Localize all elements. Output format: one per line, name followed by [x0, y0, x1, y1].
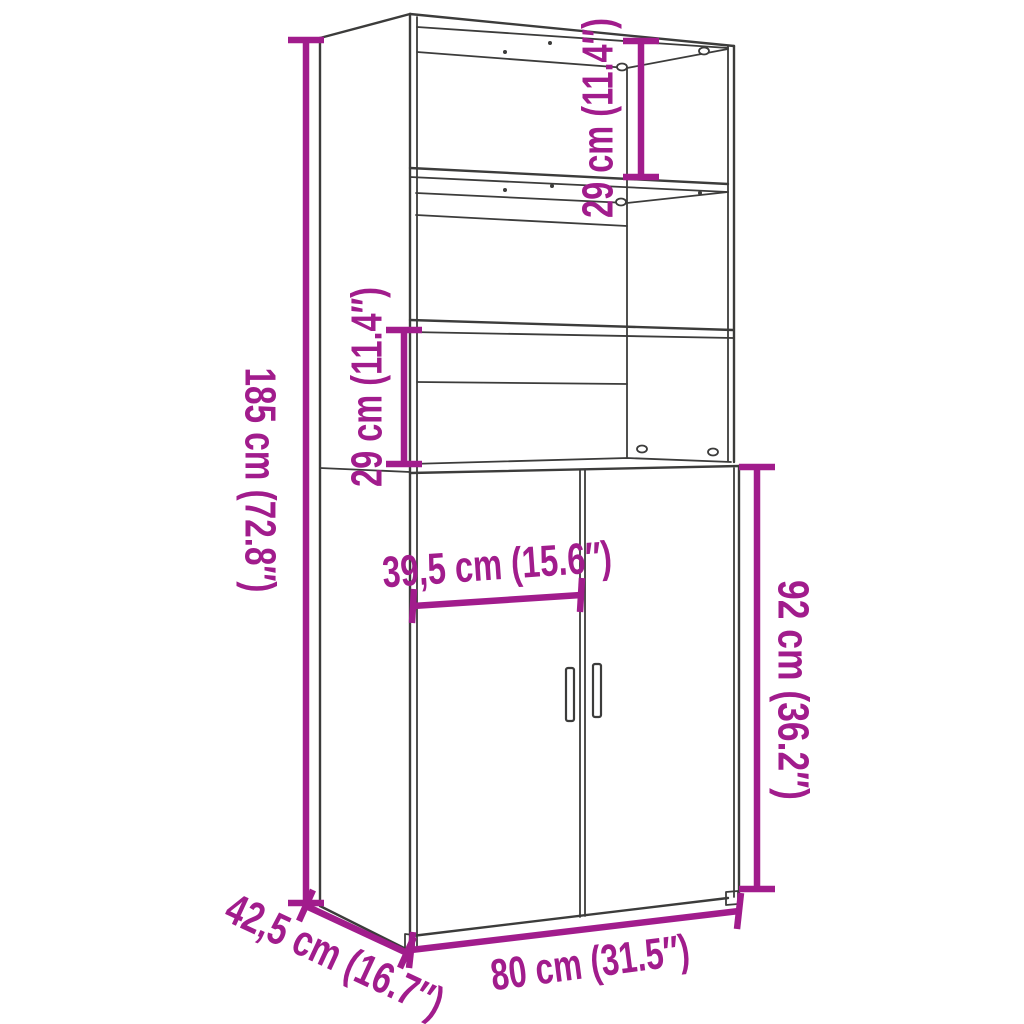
- door-handle-left: [566, 668, 574, 721]
- back-rail-edge: [417, 382, 627, 384]
- shelf-pin-hole: [550, 184, 554, 188]
- diagram-canvas: 185 cm (72.8″) 29 cm (11.4″) 29 cm (11.4…: [0, 0, 1024, 1024]
- shelf-pin-hole: [698, 191, 702, 195]
- dimension-line: [413, 595, 581, 606]
- middle-compartment-label: 29 cm (11.4″): [342, 287, 391, 487]
- shelf-front-bottom-edge: [410, 332, 733, 338]
- dimension-overall-width: 80 cm (31.5″): [409, 893, 741, 1000]
- shelf-pin-hole: [503, 50, 507, 54]
- shelf-1: [410, 168, 728, 226]
- shelf-front-top-edge: [410, 320, 733, 330]
- screw-hole: [708, 449, 718, 456]
- shelf-pin-hole: [548, 41, 552, 45]
- dimension-door-section-height: 92 cm (36.2″): [739, 467, 818, 889]
- shelf-2: [410, 320, 733, 384]
- bottom-interior-edge: [410, 458, 731, 464]
- shelf-underside-right: [627, 192, 728, 203]
- screw-hole: [699, 48, 709, 55]
- dimension-overall-height: 185 cm (72.8″): [236, 40, 324, 903]
- left-top-edge: [320, 14, 410, 38]
- top-compartment-label: 29 cm (11.4″): [573, 18, 622, 218]
- lower-top-front-edge: [410, 466, 739, 473]
- screw-hole: [637, 446, 647, 453]
- shelf-front-bottom-edge: [410, 177, 728, 192]
- dimension-tick: [737, 893, 741, 929]
- shelf-pin-hole: [503, 188, 507, 192]
- door-section-height-label: 92 cm (36.2″): [769, 580, 818, 800]
- shelf-front-top-edge: [410, 168, 728, 184]
- door-handle-right: [593, 664, 601, 717]
- upper-unit-bottom: [410, 446, 731, 465]
- dimension-door-width: 39,5 cm (15.6″): [381, 532, 614, 623]
- upper-shelf-unit: [410, 14, 734, 464]
- cabinet-dimension-diagram: 185 cm (72.8″) 29 cm (11.4″) 29 cm (11.4…: [0, 0, 1024, 1024]
- overall-height-label: 185 cm (72.8″): [236, 368, 285, 593]
